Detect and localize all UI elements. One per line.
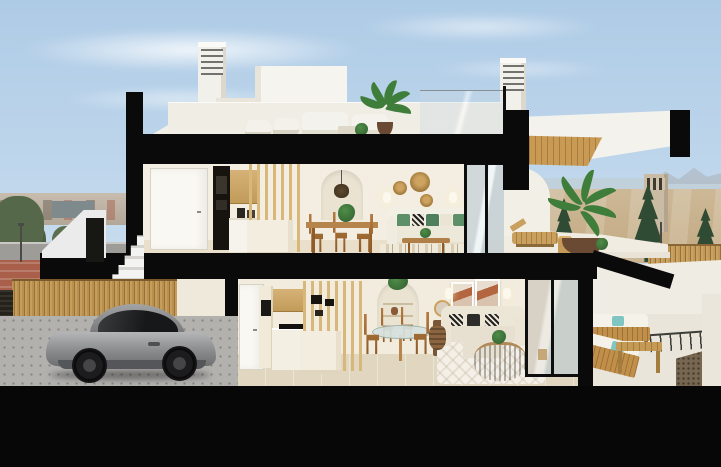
car-side-vent <box>148 342 160 346</box>
reflection-outdoor-table <box>538 349 547 360</box>
rattan-coffee-table <box>474 342 526 381</box>
niche-shelf <box>383 315 413 317</box>
chimney-louvers <box>201 49 223 75</box>
cut-ground-right-wall <box>578 277 593 390</box>
ground-sliding-glass-door <box>525 277 584 377</box>
architectural-cross-section-render <box>0 0 721 467</box>
niche-shelf <box>383 303 413 305</box>
car-rear-wheel <box>162 346 197 381</box>
teal-pillow <box>612 316 624 326</box>
watchtower-openings <box>647 178 665 190</box>
chimney-louvers <box>503 65 524 91</box>
niche-vase <box>391 307 398 315</box>
cooktop <box>279 324 306 329</box>
storage-basket <box>429 326 446 350</box>
timber-coffee-table <box>616 342 662 351</box>
cut-roof-slab <box>143 134 513 164</box>
street-lamp <box>20 226 22 262</box>
rooftop-sun-lounger <box>272 118 301 134</box>
terrace-side-parapet <box>702 294 721 388</box>
grey-sports-car <box>44 298 220 382</box>
wall-basket-decor <box>393 181 407 195</box>
terrace-sun-lounger <box>512 232 558 244</box>
wall-sconce <box>445 288 453 299</box>
wall-basket-decor <box>420 194 433 207</box>
tall-oven-cabinet <box>259 286 273 368</box>
kitchen-island <box>247 220 293 256</box>
cut-foundation-slab <box>0 386 721 467</box>
cushion <box>440 214 452 226</box>
wall-basket-decor <box>410 172 430 192</box>
built-in-oven <box>261 300 271 316</box>
pendant-cord <box>341 170 342 184</box>
sofa-arm <box>387 216 397 246</box>
wall-sconce <box>503 288 511 299</box>
kitchen-island <box>300 331 341 374</box>
cloud <box>360 12 600 42</box>
upper-hall-door <box>150 168 208 250</box>
shelf-appliance <box>325 299 334 306</box>
striped-cushion <box>412 214 424 226</box>
coffee-machine <box>237 208 245 218</box>
cut-right-column <box>503 110 529 190</box>
entrance-doorway <box>86 218 104 262</box>
wall-sconce <box>383 192 391 203</box>
car-front-wheel <box>72 348 107 383</box>
shelf-appliance <box>311 295 322 304</box>
glass-balustrade <box>420 90 505 139</box>
artwork <box>477 281 498 309</box>
shelf-decor <box>315 310 323 316</box>
glass-mullion <box>551 280 554 374</box>
sofa-arm <box>515 316 525 346</box>
cut-cantilever-edge <box>670 110 690 157</box>
oven-column <box>213 166 230 250</box>
dining-table <box>306 222 378 228</box>
wall-sconce <box>449 192 457 203</box>
pendant-lamp <box>334 184 349 198</box>
glass-mullion <box>485 165 488 257</box>
kitchen-upper-cabinet <box>273 289 304 312</box>
